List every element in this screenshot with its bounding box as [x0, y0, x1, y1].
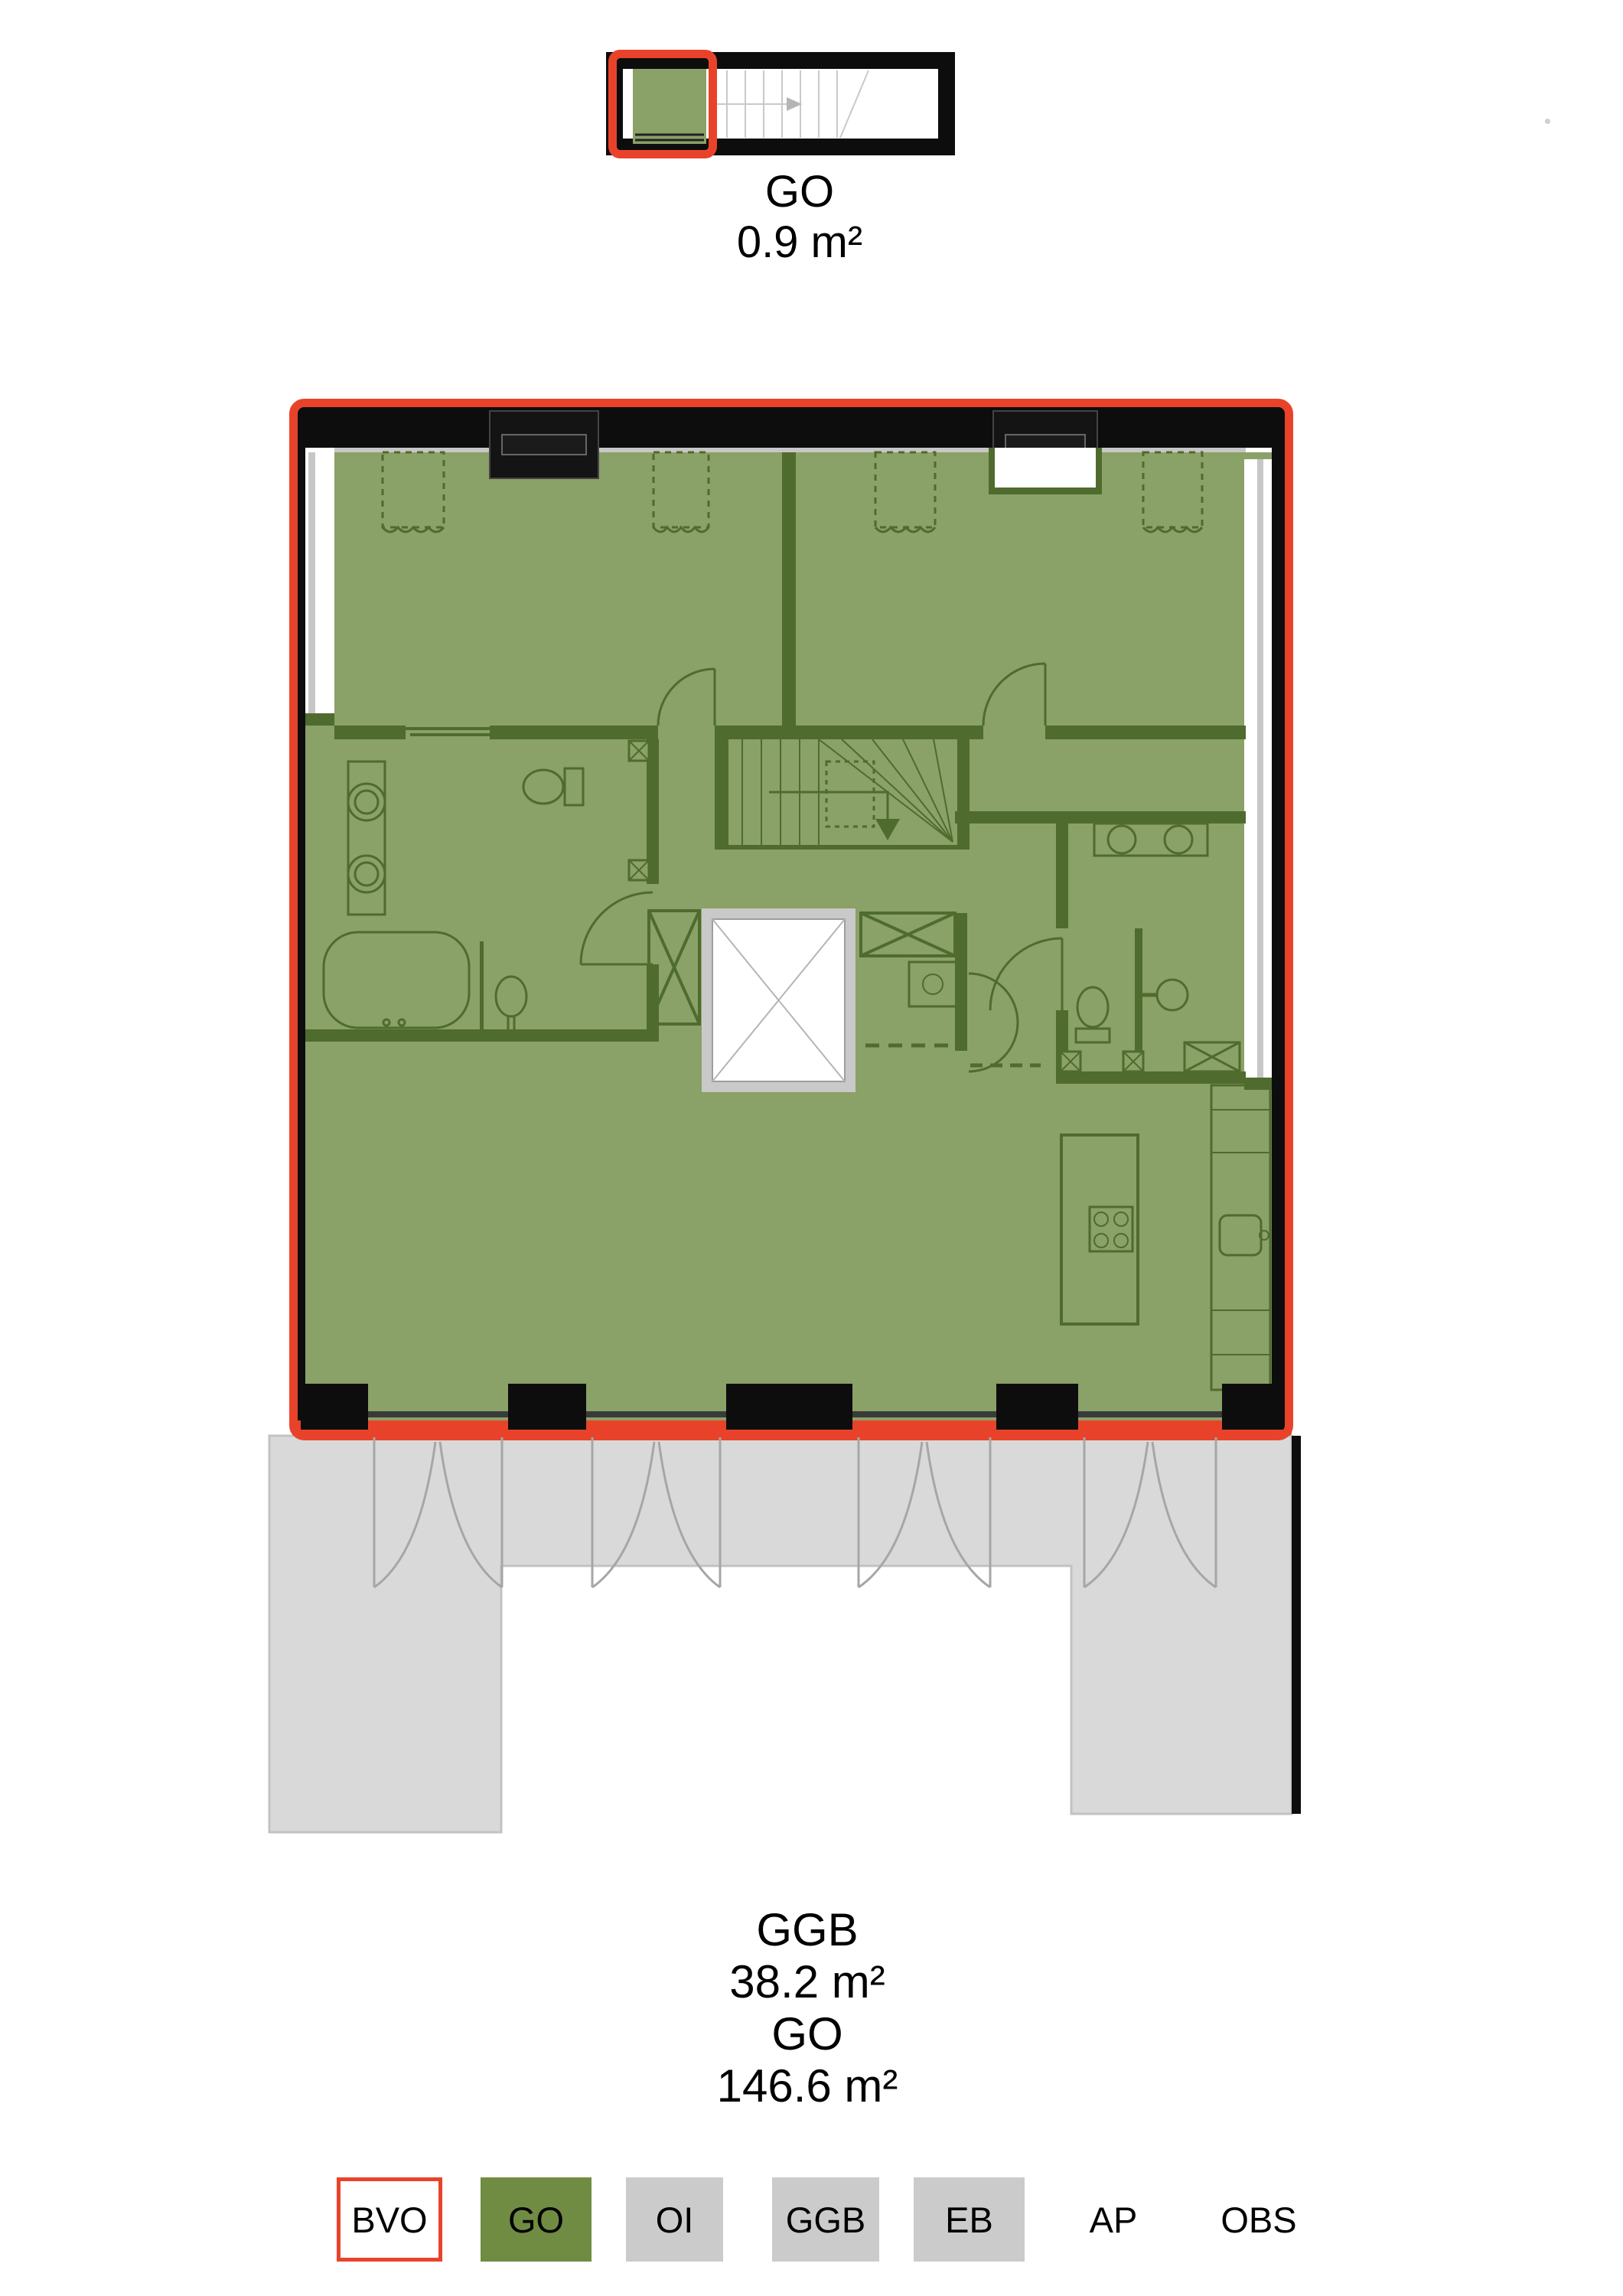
terrace-right-wall: [1292, 1436, 1301, 1814]
left-outer-wall: [298, 406, 305, 1422]
elevator-shaft-icon: [702, 908, 855, 1092]
ggb-label: GGB: [616, 1904, 999, 1956]
top-outer-wall: [298, 406, 1286, 448]
upper-go-area-fill: [633, 69, 706, 144]
window-left-frame: [308, 452, 315, 716]
legend-item-go: GO: [481, 2177, 592, 2262]
page-mark-dot: [1545, 119, 1550, 124]
main-floor-plan: [269, 403, 1301, 1833]
upper-floor-plan: [613, 54, 947, 155]
legend-item-obs: OBS: [1198, 2177, 1320, 2262]
main-plan-labels: GGB 38.2 m² GO 146.6 m²: [616, 1904, 999, 2112]
legend-item-oi: OI: [626, 2177, 723, 2262]
legend-item-ggb: GGB: [772, 2177, 879, 2262]
legend-item-eb: EB: [914, 2177, 1025, 2262]
ggb-area: 38.2 m²: [616, 1956, 999, 2008]
floorplan-sheet: GO 0.9 m² GGB 38.2 m² GO 146.6 m² BVO GO…: [0, 0, 1623, 2296]
upper-plan-room-area: 0.9 m²: [608, 217, 991, 268]
window-sill-top: [334, 448, 1246, 452]
go-label: GO: [616, 2008, 999, 2060]
top-recess: [989, 448, 1102, 494]
go-area: 146.6 m²: [616, 2060, 999, 2112]
legend-item-ap: AP: [1064, 2177, 1163, 2262]
legend-item-bvo: BVO: [337, 2177, 442, 2262]
upper-plan-label: GO 0.9 m²: [608, 167, 991, 268]
upper-plan-room-code: GO: [608, 167, 991, 217]
window-right-frame: [1257, 459, 1263, 1081]
